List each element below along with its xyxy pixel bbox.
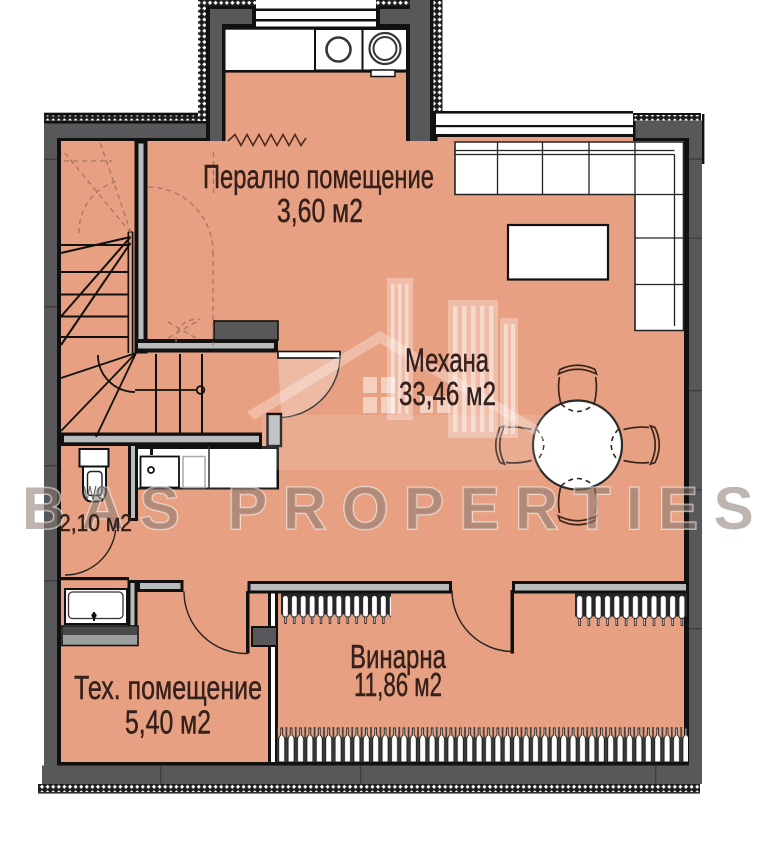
svg-text:2,10 м2: 2,10 м2 [59, 510, 132, 537]
svg-text:3,60 м2: 3,60 м2 [277, 192, 363, 229]
svg-text:Тех. помещение: Тех. помещение [74, 669, 262, 706]
svg-text:BAS PROPERTIES: BAS PROPERTIES [22, 475, 768, 542]
svg-text:5,40 м2: 5,40 м2 [125, 704, 211, 741]
svg-text:11,86 м2: 11,86 м2 [354, 666, 442, 703]
svg-text:33,46 м2: 33,46 м2 [399, 375, 496, 412]
svg-text:Перално помещение: Перално помещение [203, 158, 434, 195]
svg-text:Механа: Механа [405, 342, 489, 379]
svg-text:WC: WC [84, 484, 107, 505]
